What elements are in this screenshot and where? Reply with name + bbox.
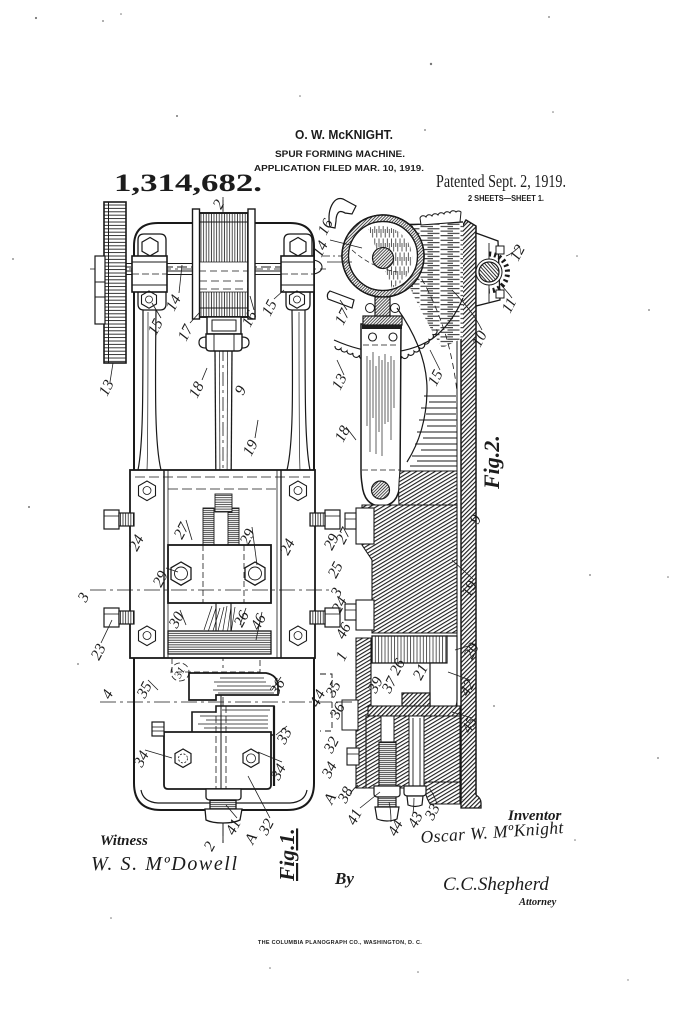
svg-text:Attorney: Attorney xyxy=(518,897,557,908)
svg-text:By: By xyxy=(334,869,354,888)
svg-text:O. W. McKNIGHT.: O. W. McKNIGHT. xyxy=(295,128,393,142)
svg-text:APPLICATION FILED MAR. 10, 191: APPLICATION FILED MAR. 10, 1919. xyxy=(254,164,424,173)
svg-text:2 SHEETS—SHEET 1.: 2 SHEETS—SHEET 1. xyxy=(468,194,544,203)
svg-text:Patented Sept. 2, 1919.: Patented Sept. 2, 1919. xyxy=(436,171,566,191)
svg-text:SPUR FORMING MACHINE.: SPUR FORMING MACHINE. xyxy=(275,149,405,160)
svg-text:C.C.Shepherd: C.C.Shepherd xyxy=(443,874,549,895)
svg-text:Witness: Witness xyxy=(100,833,148,849)
svg-text:Fig.1.: Fig.1. xyxy=(275,828,299,882)
svg-text:THE COLUMBIA PLANOGRAPH CO., W: THE COLUMBIA PLANOGRAPH CO., WASHINGTON,… xyxy=(258,940,422,946)
svg-text:1,314,682.: 1,314,682. xyxy=(114,170,262,197)
svg-text:Fig.2.: Fig.2. xyxy=(479,435,504,490)
